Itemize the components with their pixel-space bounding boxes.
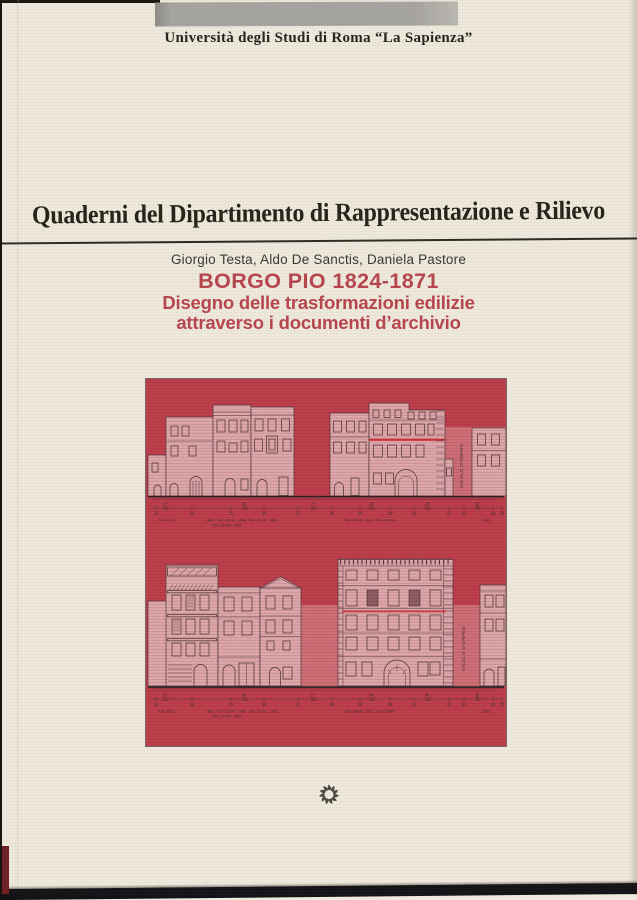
svg-text:33: 33: [154, 702, 159, 707]
elevation-drawing: VICOLO D'ORFEO VICOLO D'ORFEO 3317534351…: [146, 379, 506, 746]
svg-text:175: 175: [163, 693, 169, 702]
svg-text:37: 37: [296, 511, 301, 516]
svg-text:T54-38946 1913 T54-75496: T54-38946 1913 T54-75496: [344, 710, 395, 714]
svg-text:45: 45: [500, 511, 505, 516]
svg-text:176: 176: [242, 693, 248, 702]
svg-text:41: 41: [412, 702, 417, 707]
svg-text:1883 T54-31747 1890 T54-21747: 1883 T54-31747 1890 T54-21747 1880: [206, 519, 278, 523]
svg-text:176: 176: [242, 502, 248, 511]
measurement-ruler-lower: 3317534351763637177383917840411794243180…: [150, 693, 505, 719]
measurement-ruler-upper: 3317534351763637177383917840411794243180…: [150, 502, 505, 528]
right-edge-shadow: [629, 0, 637, 895]
authors-line: Giorgio Testa, Aldo De Sanctis, Daniela …: [0, 252, 637, 267]
svg-text:38: 38: [330, 511, 335, 516]
svg-text:44: 44: [491, 511, 496, 516]
street-label-upper: VICOLO D'ORFEO: [459, 443, 464, 488]
svg-text:T54-31499 1906: T54-31499 1906: [212, 524, 242, 528]
cover-illustration-panel: VICOLO D'ORFEO VICOLO D'ORFEO 3317534351…: [146, 379, 506, 746]
publisher-mark: [316, 781, 342, 807]
svg-text:179: 179: [425, 502, 431, 511]
svg-text:34: 34: [190, 511, 195, 516]
svg-text:T54-75946 1913 T54-75496: T54-75946 1913 T54-75496: [344, 519, 395, 523]
book-subtitle-line1: Disegno delle trasformazioni edilizie: [0, 292, 637, 314]
book-subtitle-line2: attraverso i documenti d’archivio: [0, 312, 637, 334]
book-title: BORGO PIO 1824-1871: [0, 269, 637, 294]
gray-header-band: [155, 1, 458, 26]
svg-text:43: 43: [462, 702, 467, 707]
svg-text:178: 178: [369, 693, 375, 702]
svg-text:36: 36: [262, 511, 267, 516]
svg-text:175: 175: [163, 502, 169, 511]
svg-text:39: 39: [358, 511, 363, 516]
svg-text:37: 37: [296, 702, 301, 707]
svg-text:42: 42: [447, 702, 452, 707]
svg-text:38: 38: [330, 702, 335, 707]
svg-text:44: 44: [491, 702, 496, 707]
svg-text:42: 42: [447, 511, 452, 516]
svg-text:T54-3921: T54-3921: [158, 710, 175, 714]
cover-fold-crease: [17, 0, 19, 895]
svg-text:45: 45: [500, 702, 505, 707]
svg-text:36: 36: [262, 702, 267, 707]
svg-text:177: 177: [311, 693, 317, 702]
affiliation-text: Università degli Studi di Roma “La Sapie…: [0, 30, 637, 47]
svg-text:178: 178: [369, 502, 375, 511]
svg-text:1912: 1912: [482, 519, 490, 523]
svg-text:40: 40: [388, 702, 393, 707]
top-edge-line: [0, 0, 160, 3]
svg-text:35: 35: [229, 702, 234, 707]
svg-text:34: 34: [190, 702, 195, 707]
svg-text:33: 33: [154, 511, 159, 516]
left-edge-line: [0, 0, 2, 895]
sun-icon: [316, 781, 342, 807]
svg-text:1912: 1912: [482, 710, 490, 714]
svg-text:41: 41: [412, 511, 417, 516]
svg-text:39: 39: [358, 702, 363, 707]
book-cover-scan: { "cover": { "affiliation": "Università …: [0, 0, 637, 895]
svg-text:1883 T54-31747 1920 T54-31747: 1883 T54-31747 1920 T54-31747 1750: [206, 710, 278, 714]
street-label-lower: VICOLO D'ORFEO: [461, 626, 466, 671]
svg-text:35: 35: [229, 511, 234, 516]
svg-text:177: 177: [311, 502, 317, 511]
svg-text:40: 40: [388, 511, 393, 516]
series-title: Quaderni del Dipartimento di Rappresenta…: [0, 195, 637, 231]
svg-text:180: 180: [475, 502, 481, 511]
svg-text:T54-31499 1906: T54-31499 1906: [212, 715, 242, 719]
svg-text:180: 180: [475, 693, 481, 702]
title-rule: [0, 237, 637, 244]
svg-text:179: 179: [425, 693, 431, 702]
svg-text:43: 43: [462, 511, 467, 516]
svg-text:T54-3921: T54-3921: [158, 519, 175, 523]
